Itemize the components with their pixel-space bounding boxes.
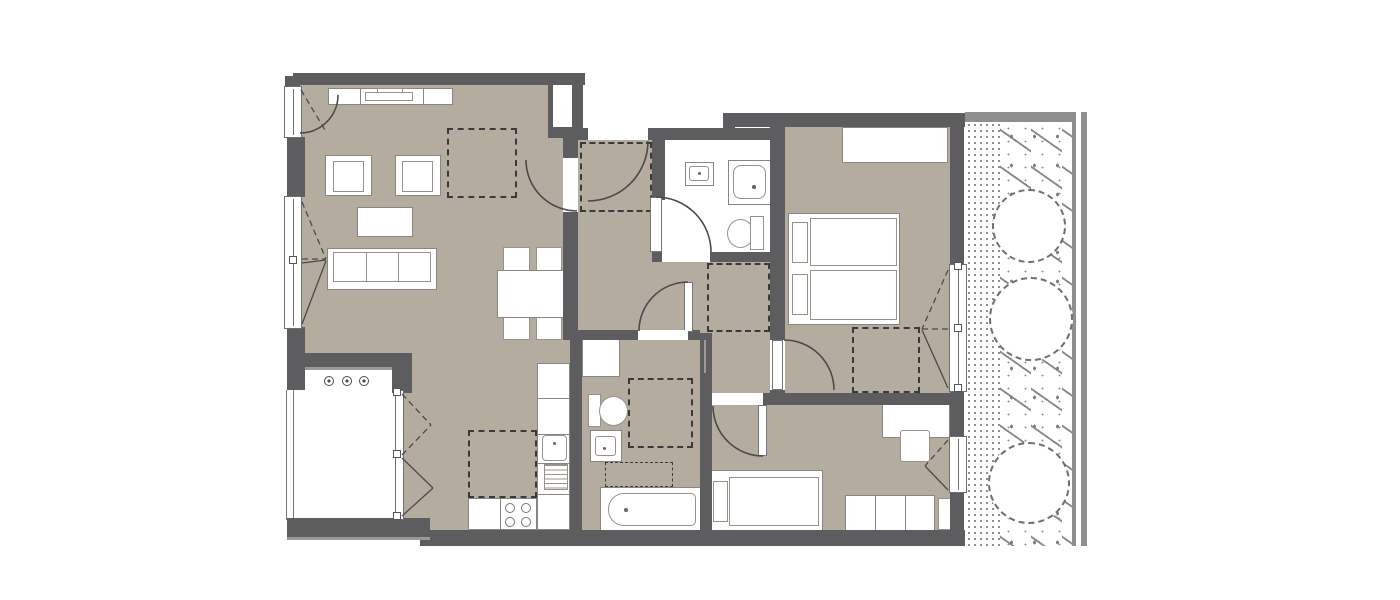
window-swing-solid [922,330,948,388]
door-arc-living-entry [526,160,577,211]
door-arc-living-window [300,95,338,133]
window-swing-dashed [301,90,325,130]
door-swing-overlay [0,0,1400,600]
window-swing-solid [302,260,326,263]
window-swing-dashed [922,270,948,329]
door-arc-bedroom-2 [713,406,763,456]
window-swing-dashed [402,425,431,455]
door-arc-bathroom-1 [656,197,711,252]
door-arc-entrance [588,141,648,201]
window-swing-solid [925,466,948,490]
window-swing-dashed [925,440,948,466]
window-swing-solid [302,261,326,324]
door-arc-bedroom-1 [784,340,834,390]
floor-plan-canvas [0,0,1400,600]
window-swing-dashed [302,202,326,259]
door-arc-bathroom-2 [639,282,688,331]
window-swing-dashed [402,394,431,425]
window-swing-solid [402,458,433,488]
window-swing-solid [402,488,433,516]
